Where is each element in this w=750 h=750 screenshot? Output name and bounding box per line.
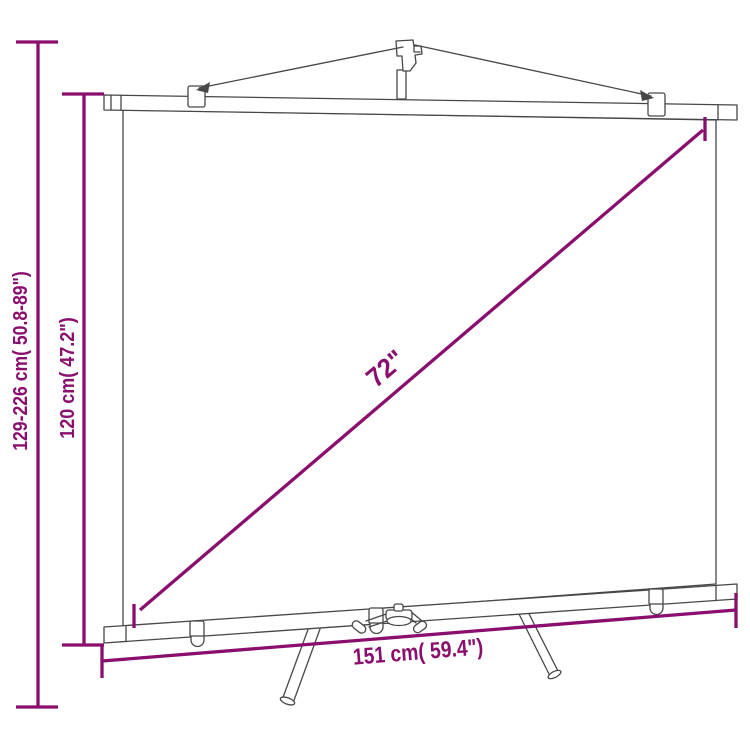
bottom-bar-handle <box>369 608 383 634</box>
hanger-wires <box>196 45 654 101</box>
hanger-wire-left <box>199 47 403 88</box>
bottom-bar-clip-right <box>649 589 663 615</box>
hanger-hook <box>396 40 422 71</box>
bottom-bar-clip-left <box>190 621 204 647</box>
hanger-wire-right <box>415 45 651 96</box>
total-height-label: 129-226 cm( 50.8-89") <box>11 271 31 451</box>
product-dimension-diagram: 129-226 cm( 50.8-89") 120 cm( 47.2") 72"… <box>0 0 750 750</box>
tripod-hub-knob <box>394 604 403 611</box>
screen-height-label: 120 cm( 47.2") <box>58 317 78 439</box>
hanger-post <box>397 70 406 99</box>
